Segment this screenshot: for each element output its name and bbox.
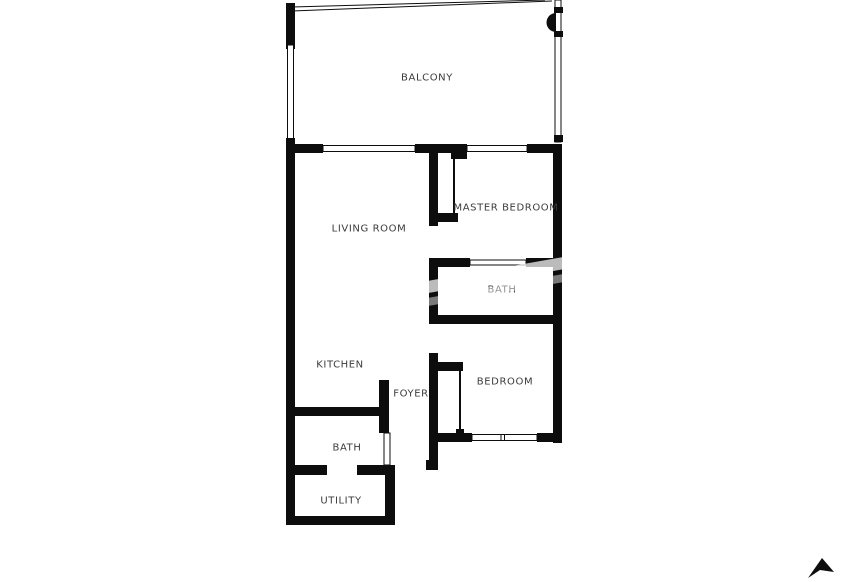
wall-stub (451, 150, 467, 159)
room-label-master-bedroom: MASTER BEDROOM (454, 203, 559, 214)
wall-segment (433, 433, 472, 442)
wall-segment (429, 258, 470, 267)
floorplan-drawing (0, 0, 851, 582)
wall-tick (554, 135, 563, 142)
wall-end-cap (426, 460, 438, 470)
wall-stub (433, 213, 458, 222)
wall-tick (286, 138, 295, 144)
room-label-balcony: BALCONY (401, 73, 453, 84)
north-arrow-icon (808, 558, 834, 578)
wall-segment (286, 407, 388, 416)
wall-segment (429, 258, 438, 323)
floorplan-canvas: BALCONY LIVING ROOM MASTER BEDROOM BATH … (0, 0, 851, 582)
wall-segment (379, 380, 389, 433)
bedroom-walls (433, 362, 562, 442)
room-label-bath: BATH (333, 443, 362, 454)
room-label-kitchen: KITCHEN (316, 360, 364, 371)
balcony-front-wall (286, 144, 562, 159)
wall-segment (357, 465, 395, 475)
wall-segment (526, 258, 554, 267)
room-label-living-room: LIVING ROOM (332, 224, 407, 235)
window-master-bedroom (467, 146, 527, 152)
wall-segment (537, 433, 562, 442)
room-label-utility: UTILITY (320, 496, 361, 507)
room-label-foyer: FOYER (393, 389, 428, 400)
closet-line (459, 371, 461, 431)
bath-door-opening (470, 260, 526, 265)
wall-segment (429, 315, 562, 324)
column-half-round (547, 13, 557, 32)
bath-door-opening (384, 433, 390, 465)
wall-segment (286, 465, 327, 475)
room-label-master-bath: BATH (488, 285, 517, 296)
wall-stub (433, 362, 463, 371)
wall-balcony-left-top (286, 3, 295, 45)
window-balcony-left (288, 45, 294, 140)
wall-utility-bottom (286, 516, 395, 525)
interior-partition (426, 144, 458, 470)
exterior-walls (286, 144, 562, 525)
room-label-bedroom: BEDROOM (477, 377, 533, 388)
wall-tick (554, 7, 563, 13)
window-living-room (323, 146, 415, 152)
wall-exterior-right (553, 144, 562, 443)
